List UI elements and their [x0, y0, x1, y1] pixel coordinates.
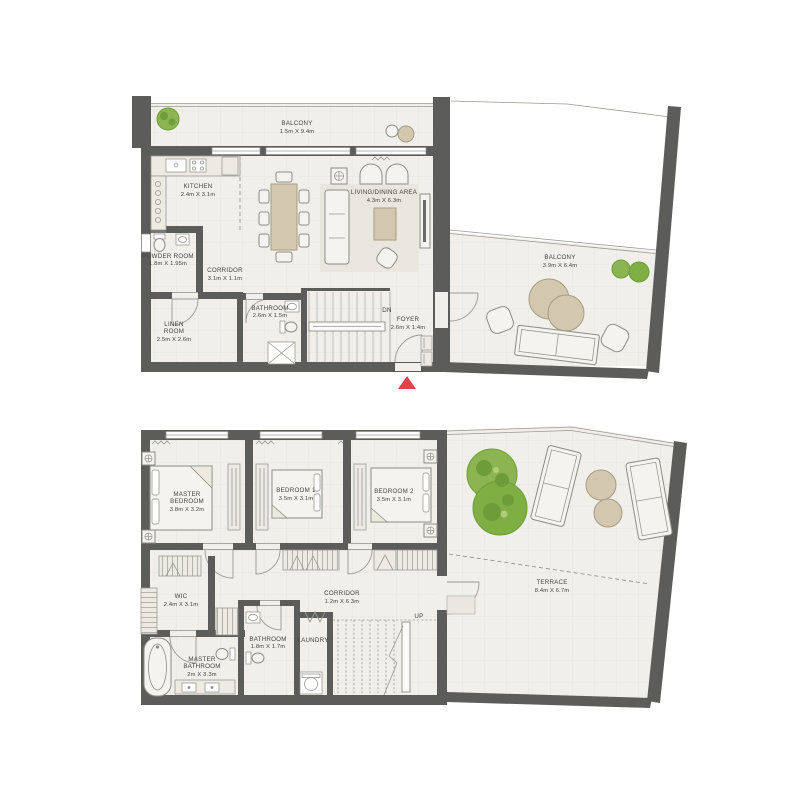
bed-bedroom1	[272, 470, 322, 518]
label-masterbath-line2: BATHROOM	[183, 663, 220, 670]
balcony-chair	[386, 125, 398, 137]
wall-corridor-top	[141, 543, 447, 550]
label-stairs-dn: DN	[382, 307, 392, 314]
lower-floor-plan: MASTER BEDROOM 3.8m X 3.2m BEDROOM 1 3.5…	[141, 426, 687, 708]
label-linen-line2: ROOM	[164, 328, 184, 335]
label-master-line1: MASTER	[173, 491, 201, 498]
wall-right	[433, 97, 450, 372]
tv-console	[420, 194, 430, 248]
entry-door-opening	[395, 363, 421, 371]
living-sofa	[325, 190, 349, 264]
label-balcony-side-name: BALCONY	[544, 254, 575, 261]
b1-door-opening	[256, 544, 280, 550]
coffee-table	[374, 208, 396, 240]
laundry-washer	[300, 672, 322, 694]
bath2-door-opening	[260, 601, 280, 606]
upper-floor-plan: BALCONY 1.5m X 9.4m KITCHEN 2.4m X 3.1m …	[132, 96, 681, 389]
label-masterbath-line1: MASTER	[188, 656, 216, 663]
label-foyer-dims: 2.6m X 1.4m	[391, 325, 426, 331]
label-corridor-lower-name: CORRIDOR	[324, 590, 360, 597]
wall-b1-b2	[343, 432, 351, 543]
label-bath2-dims: 1.8m X 1.7m	[251, 644, 286, 650]
side-table-plant	[331, 168, 347, 184]
label-foyer-name: FOYER	[397, 316, 420, 323]
label-kitchen-dims: 2.4m X 3.1m	[181, 192, 216, 198]
label-balcony-top-name: BALCONY	[281, 120, 312, 127]
terrace-table	[586, 470, 616, 500]
round-table	[548, 295, 584, 331]
label-wic-dims: 2.4m X 3.1m	[164, 602, 199, 608]
wall-master-b1	[245, 432, 253, 543]
wall-right-lower	[437, 432, 447, 695]
label-powder-name: POWDER ROOM	[142, 253, 194, 260]
wall-stairs-left	[301, 288, 307, 362]
bath-door-opening	[246, 294, 263, 300]
terrace-landing	[447, 596, 475, 614]
label-master-line2: BEDROOM	[170, 498, 204, 505]
balcony-small-table	[398, 126, 414, 142]
wall-laundry-right	[327, 612, 333, 695]
label-powder-dims: 1.8m X 1.95m	[149, 261, 187, 267]
floorplan-page: BALCONY 1.5m X 9.4m KITCHEN 2.4m X 3.1m …	[0, 0, 800, 800]
label-balcony-top-dims: 1.5m X 9.4m	[280, 129, 315, 135]
label-laundry-name: LAUNDRY	[297, 637, 328, 644]
wall-bottom-lower	[141, 695, 447, 705]
wardrobe-b2	[354, 464, 366, 530]
label-master-dims: 3.8m X 3.2m	[170, 507, 205, 513]
wall-powder-right	[196, 226, 203, 299]
wardrobe-master	[228, 464, 240, 530]
master-door-opening	[203, 544, 233, 550]
balcony-door-opening	[435, 292, 448, 328]
wall-powder-top	[141, 226, 203, 233]
label-terrace-dims: 8.4m X 6.7m	[535, 588, 570, 594]
label-b1-dims: 3.5m X 3.1m	[279, 496, 314, 502]
label-living-dims: 4.3m X 6.3m	[367, 198, 402, 204]
label-linen-line1: LINEN	[164, 321, 183, 328]
balcony-top-plant	[157, 108, 179, 130]
label-kitchen-name: KITCHEN	[184, 183, 213, 190]
bush	[629, 262, 649, 282]
label-bathroom-upper-dims: 2.6m X 1.5m	[253, 313, 288, 319]
label-terrace-name: TERRACE	[536, 579, 567, 586]
corridor-closet-b1	[283, 550, 339, 570]
label-b2-name: BEDROOM 2	[374, 488, 414, 495]
label-linen-dims: 2.5m X 2.6m	[157, 337, 192, 343]
label-stairs-up: UP	[414, 613, 423, 620]
wall-bath2-left	[238, 600, 244, 695]
label-corridor-upper-dims: 3.1m X 1.1m	[208, 276, 243, 282]
terrace-table	[594, 499, 622, 527]
label-masterbath-dims: 2m X 3.3m	[187, 672, 216, 678]
wall-balcony-right-slanted	[646, 106, 681, 373]
label-bath2-name: BATHROOM	[249, 636, 286, 643]
label-balcony-side-dims: 3.9m X 6.4m	[543, 263, 578, 269]
wall-stairs-top	[301, 288, 390, 291]
wall-laundry-left	[294, 606, 300, 695]
label-bathroom-upper-name: BATHROOM	[251, 305, 288, 312]
terrace-door-opening	[437, 576, 447, 610]
b2-door-opening	[348, 544, 372, 550]
bush	[612, 260, 630, 278]
wall	[132, 96, 151, 148]
wall-wic-right	[208, 556, 215, 633]
roof-void-outline	[451, 101, 670, 117]
linen-door-opening	[172, 293, 198, 299]
label-living-name: LIVING/DINING AREA	[351, 189, 418, 196]
label-b1-name: BEDROOM 1	[276, 487, 316, 494]
masterbath-door-opening	[170, 631, 196, 637]
wardrobe-b1	[256, 464, 268, 530]
entry-marker	[398, 376, 416, 389]
wall-left	[141, 148, 151, 372]
label-b2-dims: 3.5m X 3.1m	[377, 497, 412, 503]
wall-linen-right	[237, 299, 243, 362]
corridor-closet-b2	[374, 550, 437, 570]
label-corridor-lower-dims: 1.2m X 6.3m	[325, 599, 360, 605]
label-wic-name: WIC	[175, 593, 188, 600]
floorplan-canvas: BALCONY 1.5m X 9.4m KITCHEN 2.4m X 3.1m …	[0, 0, 800, 800]
label-corridor-upper-name: CORRIDOR	[207, 267, 243, 274]
